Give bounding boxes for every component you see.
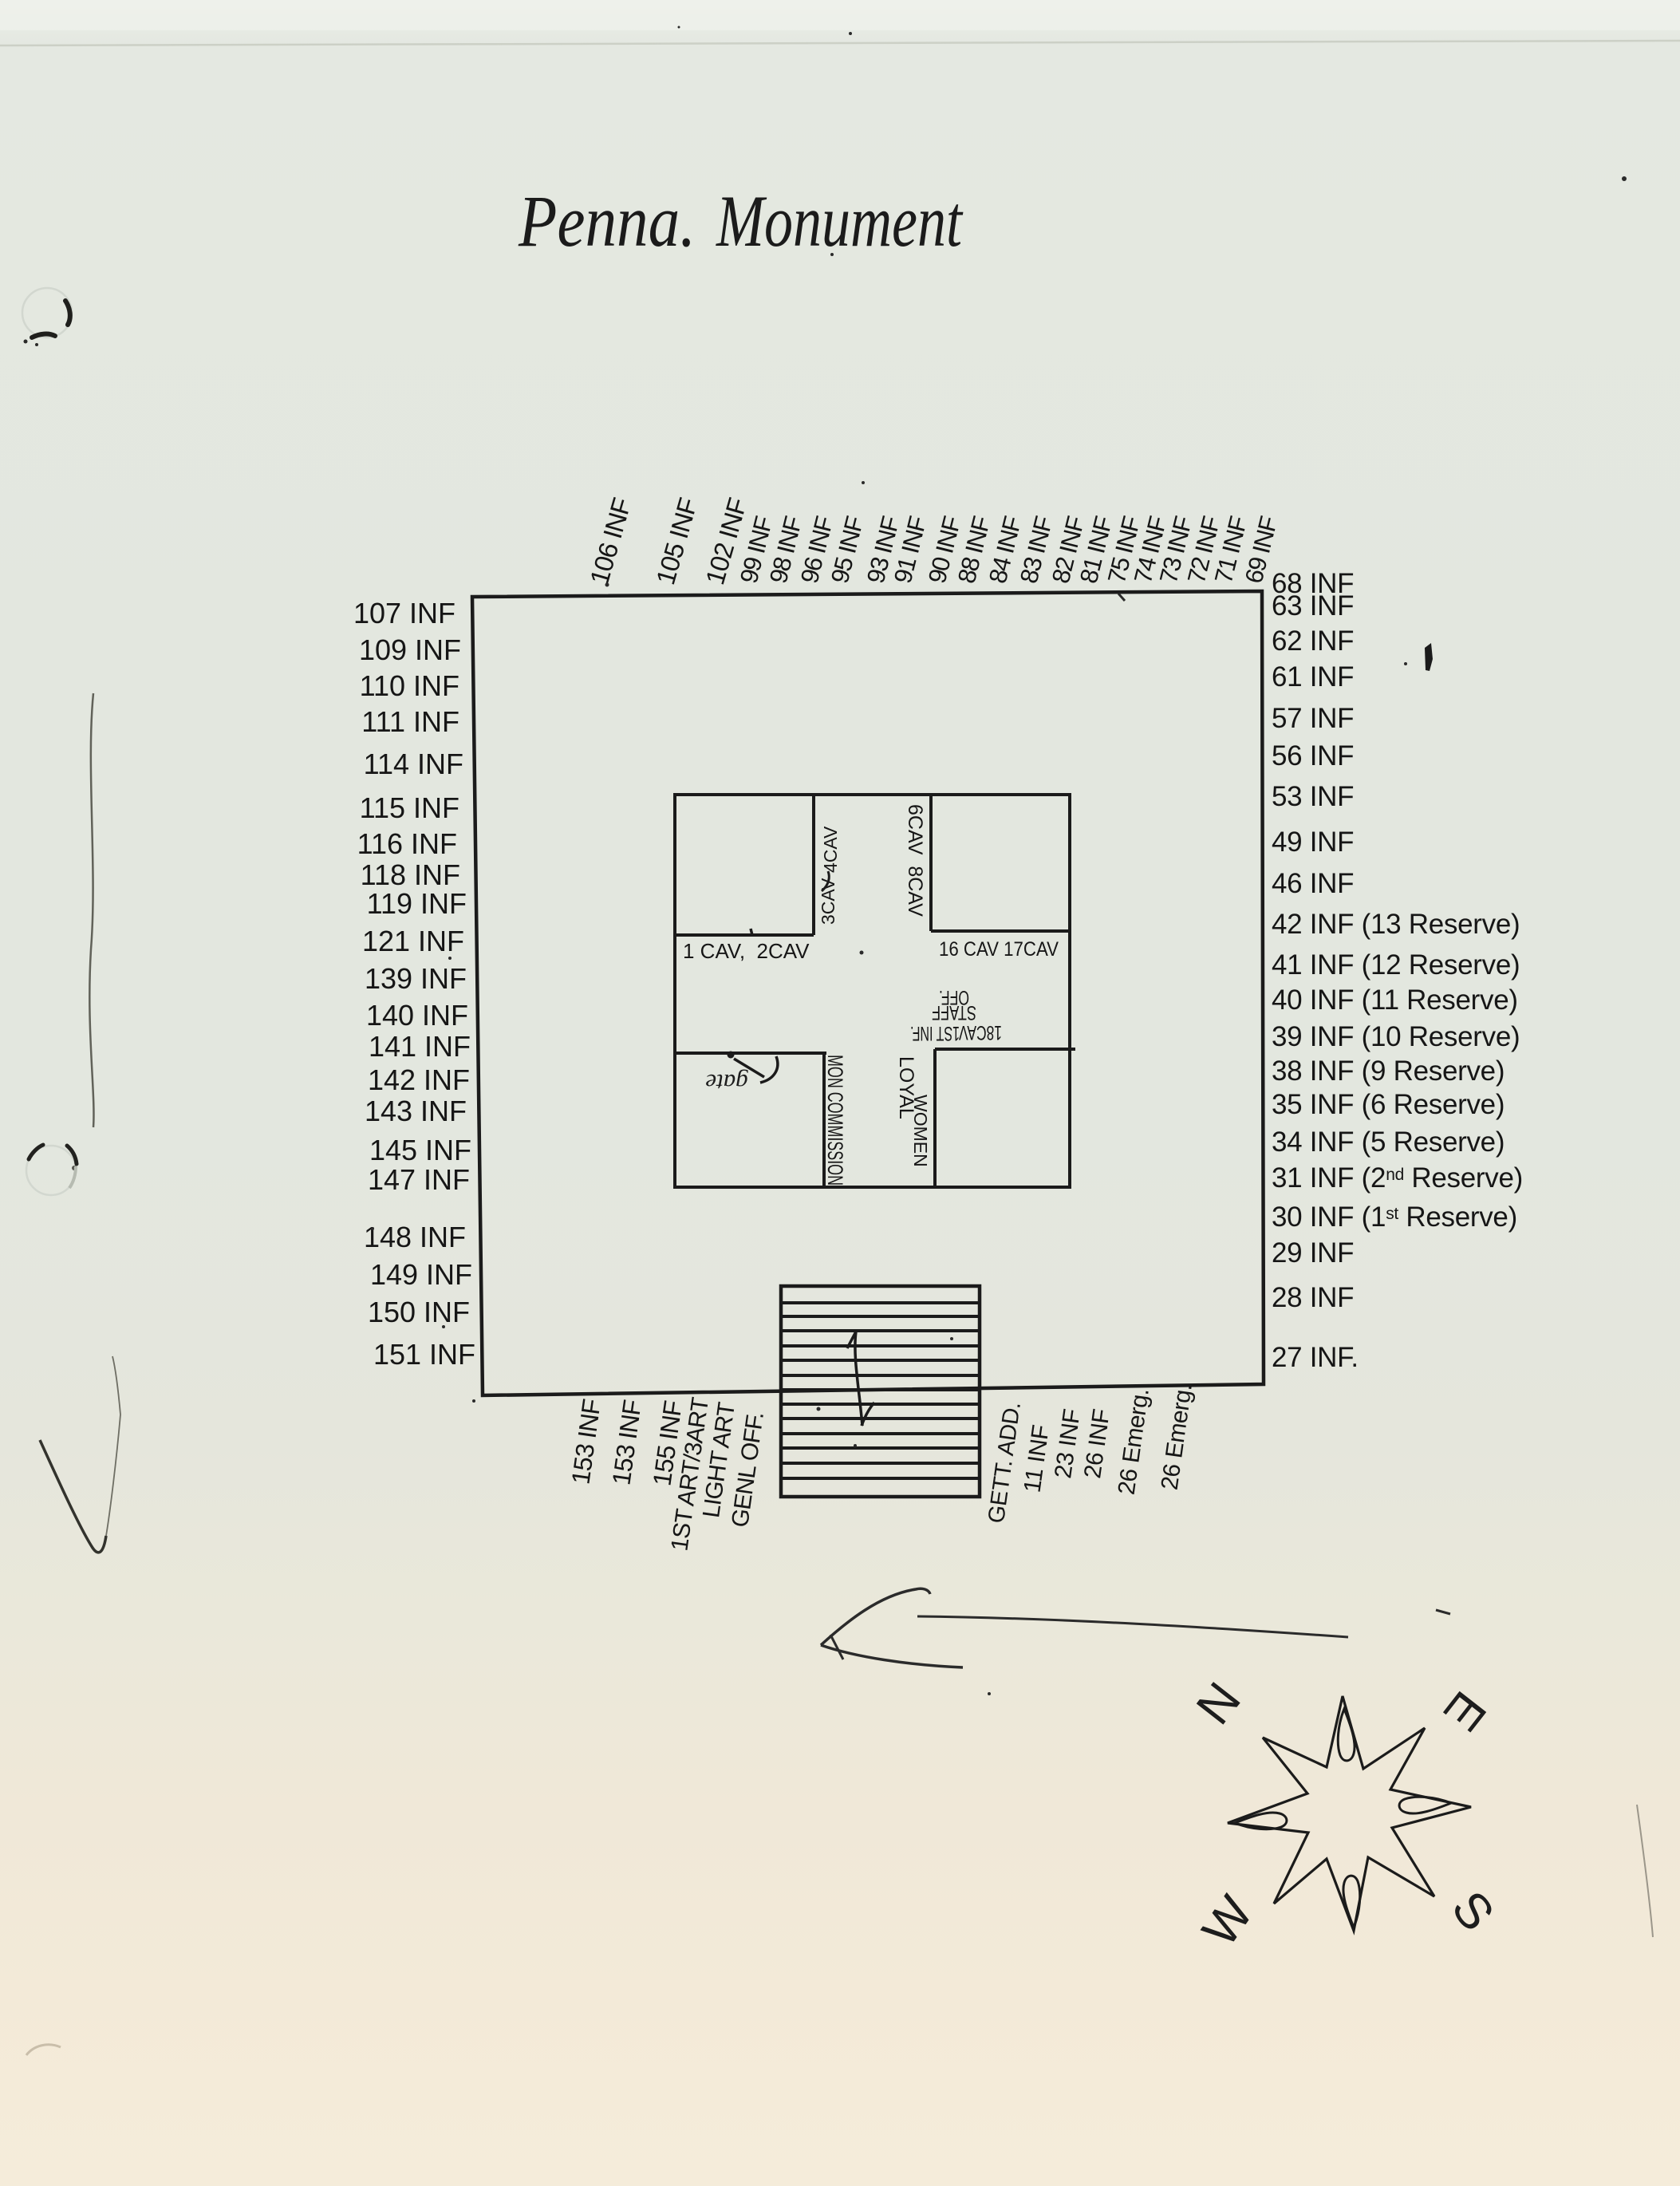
svg-text:gate: gate [705, 1069, 748, 1097]
svg-text:31 INF (2nd Reserve): 31 INF (2nd Reserve) [1272, 1162, 1523, 1194]
svg-text:151 INF: 151 INF [373, 1338, 475, 1371]
svg-text:150 INF: 150 INF [368, 1296, 470, 1328]
svg-text:63 INF: 63 INF [1272, 590, 1354, 621]
svg-text:145 INF: 145 INF [369, 1134, 471, 1166]
svg-text:42 INF (13 Reserve): 42 INF (13 Reserve) [1272, 909, 1520, 940]
svg-text:E: E [1433, 1681, 1497, 1741]
svg-text:57 INF: 57 INF [1272, 703, 1354, 734]
svg-text:56 INF: 56 INF [1272, 740, 1354, 771]
svg-text:107 INF: 107 INF [353, 597, 455, 629]
svg-text:29 INF: 29 INF [1272, 1237, 1354, 1269]
svg-text:27 INF.: 27 INF. [1272, 1342, 1359, 1373]
svg-text:140 INF: 140 INF [366, 999, 468, 1032]
svg-text:149 INF: 149 INF [370, 1258, 472, 1291]
svg-text:35 INF (6 Reserve): 35 INF (6 Reserve) [1272, 1089, 1505, 1120]
svg-text:STAFF: STAFF [932, 1001, 976, 1024]
svg-text:115 INF: 115 INF [360, 791, 459, 824]
svg-text:34 INF (5 Reserve): 34 INF (5 Reserve) [1272, 1127, 1505, 1158]
svg-text:26 Emerg.: 26 Emerg. [1114, 1387, 1154, 1496]
svg-text:46 INF: 46 INF [1272, 868, 1354, 899]
svg-text:16 CAV 17CAV: 16 CAV 17CAV [939, 938, 1059, 961]
svg-text:53 INF: 53 INF [1272, 781, 1354, 812]
svg-text:109 INF: 109 INF [359, 633, 461, 666]
svg-text:148 INF: 148 INF [364, 1221, 466, 1253]
svg-text:1ST INF.: 1ST INF. [910, 1022, 960, 1044]
svg-text:142 INF: 142 INF [368, 1063, 470, 1096]
svg-text:141 INF: 141 INF [369, 1030, 471, 1063]
svg-text:39 INF (10 Reserve): 39 INF (10 Reserve) [1272, 1021, 1520, 1052]
svg-text:114 INF: 114 INF [364, 748, 463, 780]
svg-text:30 INF (1st Reserve): 30 INF (1st Reserve) [1272, 1202, 1517, 1233]
svg-text:6CAV 8CAV: 6CAV 8CAV [904, 804, 926, 917]
svg-text:139 INF: 139 INF [365, 962, 467, 995]
svg-text:S: S [1441, 1881, 1505, 1941]
svg-text:26 Emerg.: 26 Emerg. [1157, 1382, 1197, 1491]
svg-text:Monument: Monument [715, 180, 963, 262]
svg-text:WOMEN: WOMEN [910, 1095, 931, 1167]
svg-text:49 INF: 49 INF [1272, 827, 1354, 858]
svg-text:28 INF: 28 INF [1272, 1282, 1354, 1313]
svg-text:41 INF (12 Reserve): 41 INF (12 Reserve) [1272, 949, 1520, 981]
svg-text:153 INF: 153 INF [606, 1399, 647, 1487]
svg-text:4CAV: 4CAV [820, 826, 841, 873]
svg-text:116 INF: 116 INF [357, 827, 457, 860]
svg-text:61 INF: 61 INF [1272, 661, 1354, 692]
svg-text:GETT. ADD.: GETT. ADD. [984, 1401, 1026, 1525]
svg-text:143 INF: 143 INF [365, 1095, 467, 1127]
svg-text:38 INF (9 Reserve): 38 INF (9 Reserve) [1272, 1056, 1505, 1087]
svg-text:147 INF: 147 INF [368, 1163, 470, 1196]
svg-text:1 CAV, 2CAV: 1 CAV, 2CAV [683, 939, 810, 963]
svg-text:18CAV: 18CAV [959, 1021, 1002, 1044]
svg-text:153 INF: 153 INF [566, 1398, 606, 1486]
svg-text:11 INF: 11 INF [1019, 1423, 1055, 1494]
svg-text:26 INF: 26 INF [1079, 1407, 1115, 1480]
svg-text:W: W [1192, 1886, 1264, 1956]
svg-text:N: N [1186, 1672, 1252, 1734]
svg-text:119 INF: 119 INF [367, 887, 467, 920]
svg-text:110 INF: 110 INF [360, 669, 459, 702]
svg-text:118 INF: 118 INF [361, 858, 460, 891]
svg-text:111 INF: 111 INF [361, 705, 459, 738]
svg-text:105 INF: 105 INF [650, 495, 703, 588]
svg-text:62 INF: 62 INF [1272, 625, 1354, 657]
svg-text:MON COMMISSION: MON COMMISSION [823, 1055, 847, 1186]
svg-text:40 INF (11 Reserve): 40 INF (11 Reserve) [1272, 984, 1518, 1016]
svg-text:106 INF: 106 INF [584, 495, 637, 588]
svg-text:Penna.: Penna. [518, 180, 696, 262]
svg-text:121 INF: 121 INF [362, 925, 464, 957]
